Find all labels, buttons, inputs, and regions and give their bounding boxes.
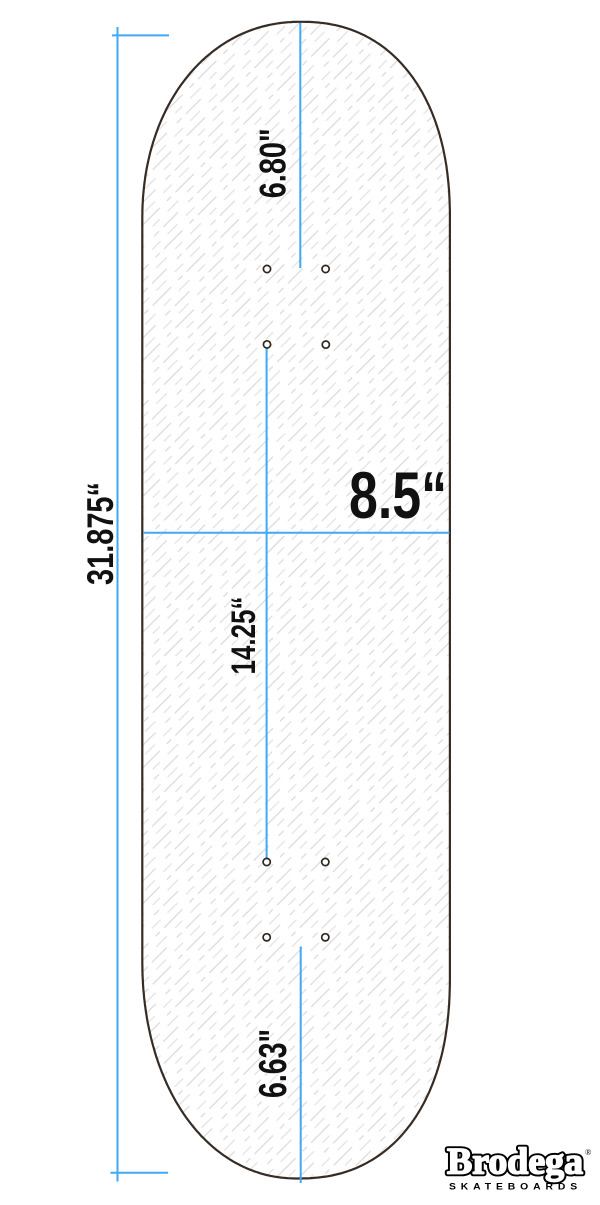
svg-text:31.875“: 31.875“: [80, 482, 121, 585]
svg-text:6.63": 6.63": [252, 1029, 295, 1098]
svg-text:SKATEBOARDS: SKATEBOARDS: [449, 1182, 582, 1193]
svg-text:8.5“: 8.5“: [349, 458, 447, 532]
svg-text:Brodega: Brodega: [447, 1142, 583, 1183]
svg-text:14.25“: 14.25“: [225, 597, 263, 675]
svg-text:®: ®: [585, 1147, 592, 1157]
svg-text:6.80": 6.80": [252, 128, 294, 198]
